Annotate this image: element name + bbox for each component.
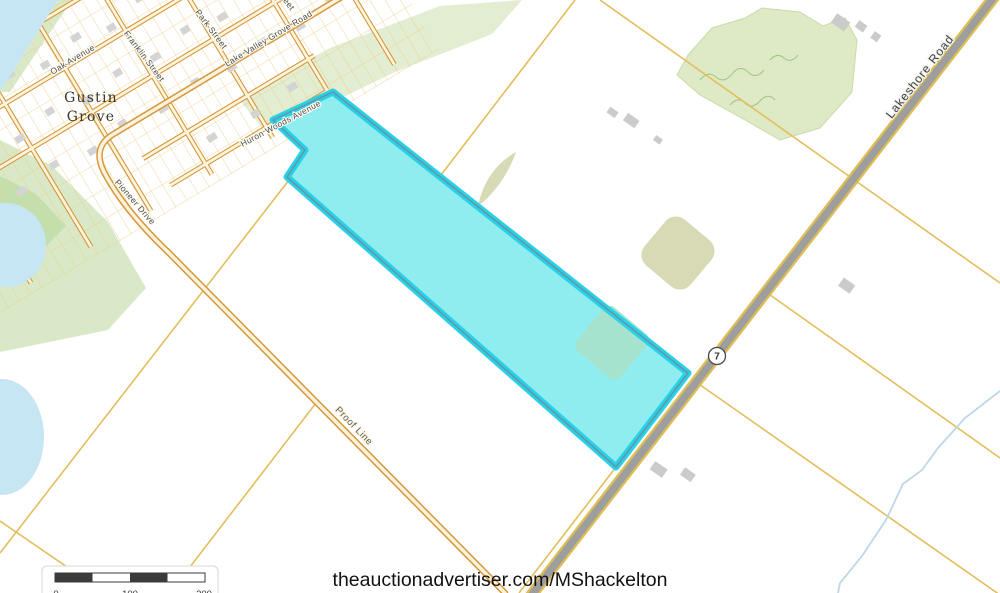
scale-label-100: 100	[122, 589, 138, 593]
attribution-text: theauctionadvertiser.com/MShackelton	[333, 569, 668, 591]
map-canvas[interactable]: 7 Oak Avenue Franklin Street Park Street…	[0, 0, 1000, 593]
parcel-map[interactable]: 7 Oak Avenue Franklin Street Park Street…	[0, 0, 1000, 593]
place-label-gustin: Gustin	[64, 90, 118, 106]
place-label-grove: Grove	[67, 109, 116, 125]
route-7-number: 7	[714, 352, 720, 363]
scale-label-0: 0	[53, 589, 58, 593]
scale-bar: 0 100 200	[42, 566, 218, 593]
scale-label-200: 200	[196, 589, 212, 593]
route-7-shield: 7	[709, 348, 726, 365]
